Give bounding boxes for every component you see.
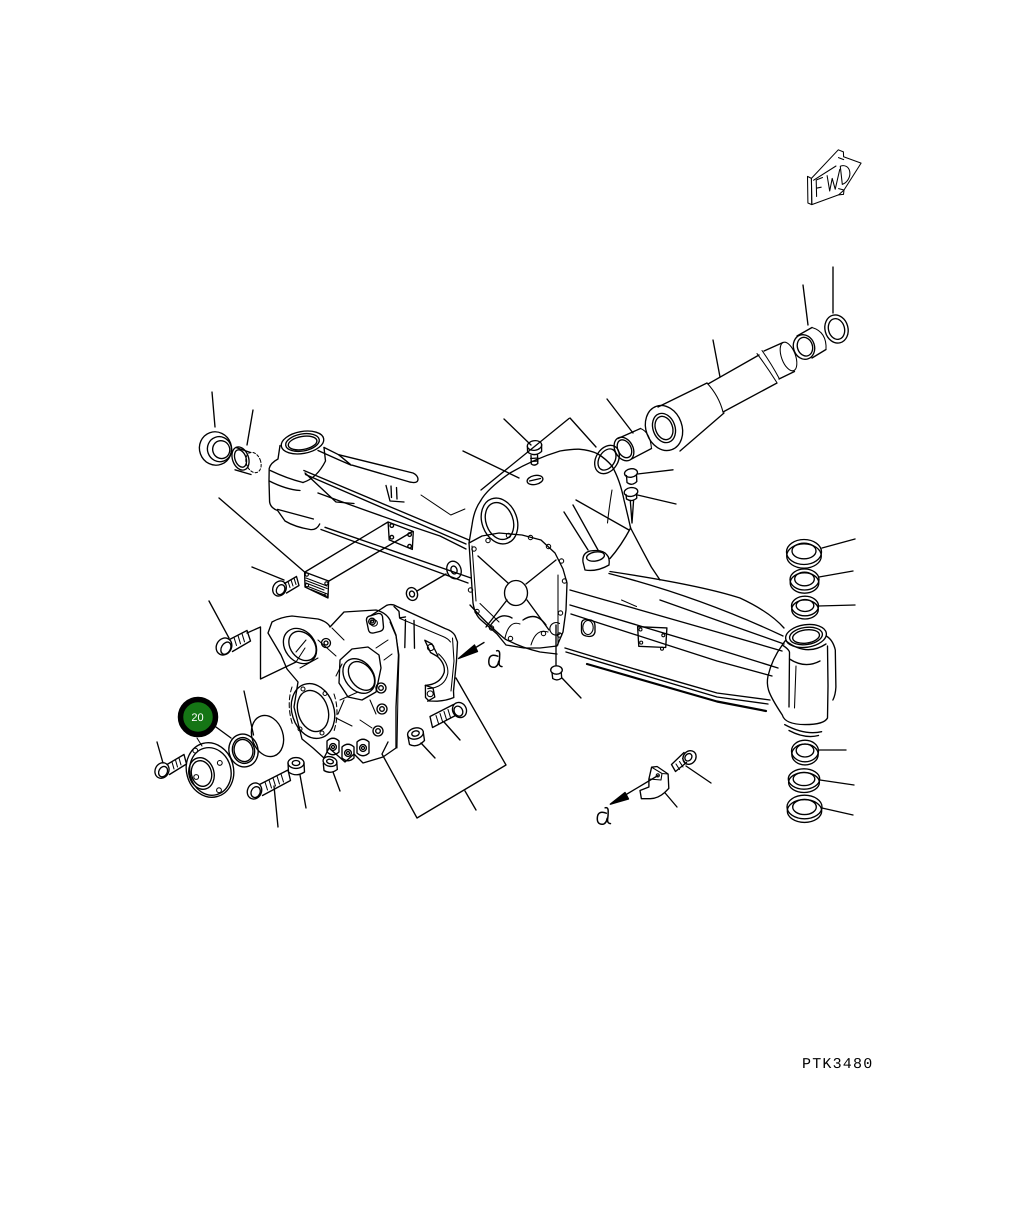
- svg-text:20: 20: [191, 712, 203, 724]
- svg-text:PTK3480: PTK3480: [802, 1056, 873, 1073]
